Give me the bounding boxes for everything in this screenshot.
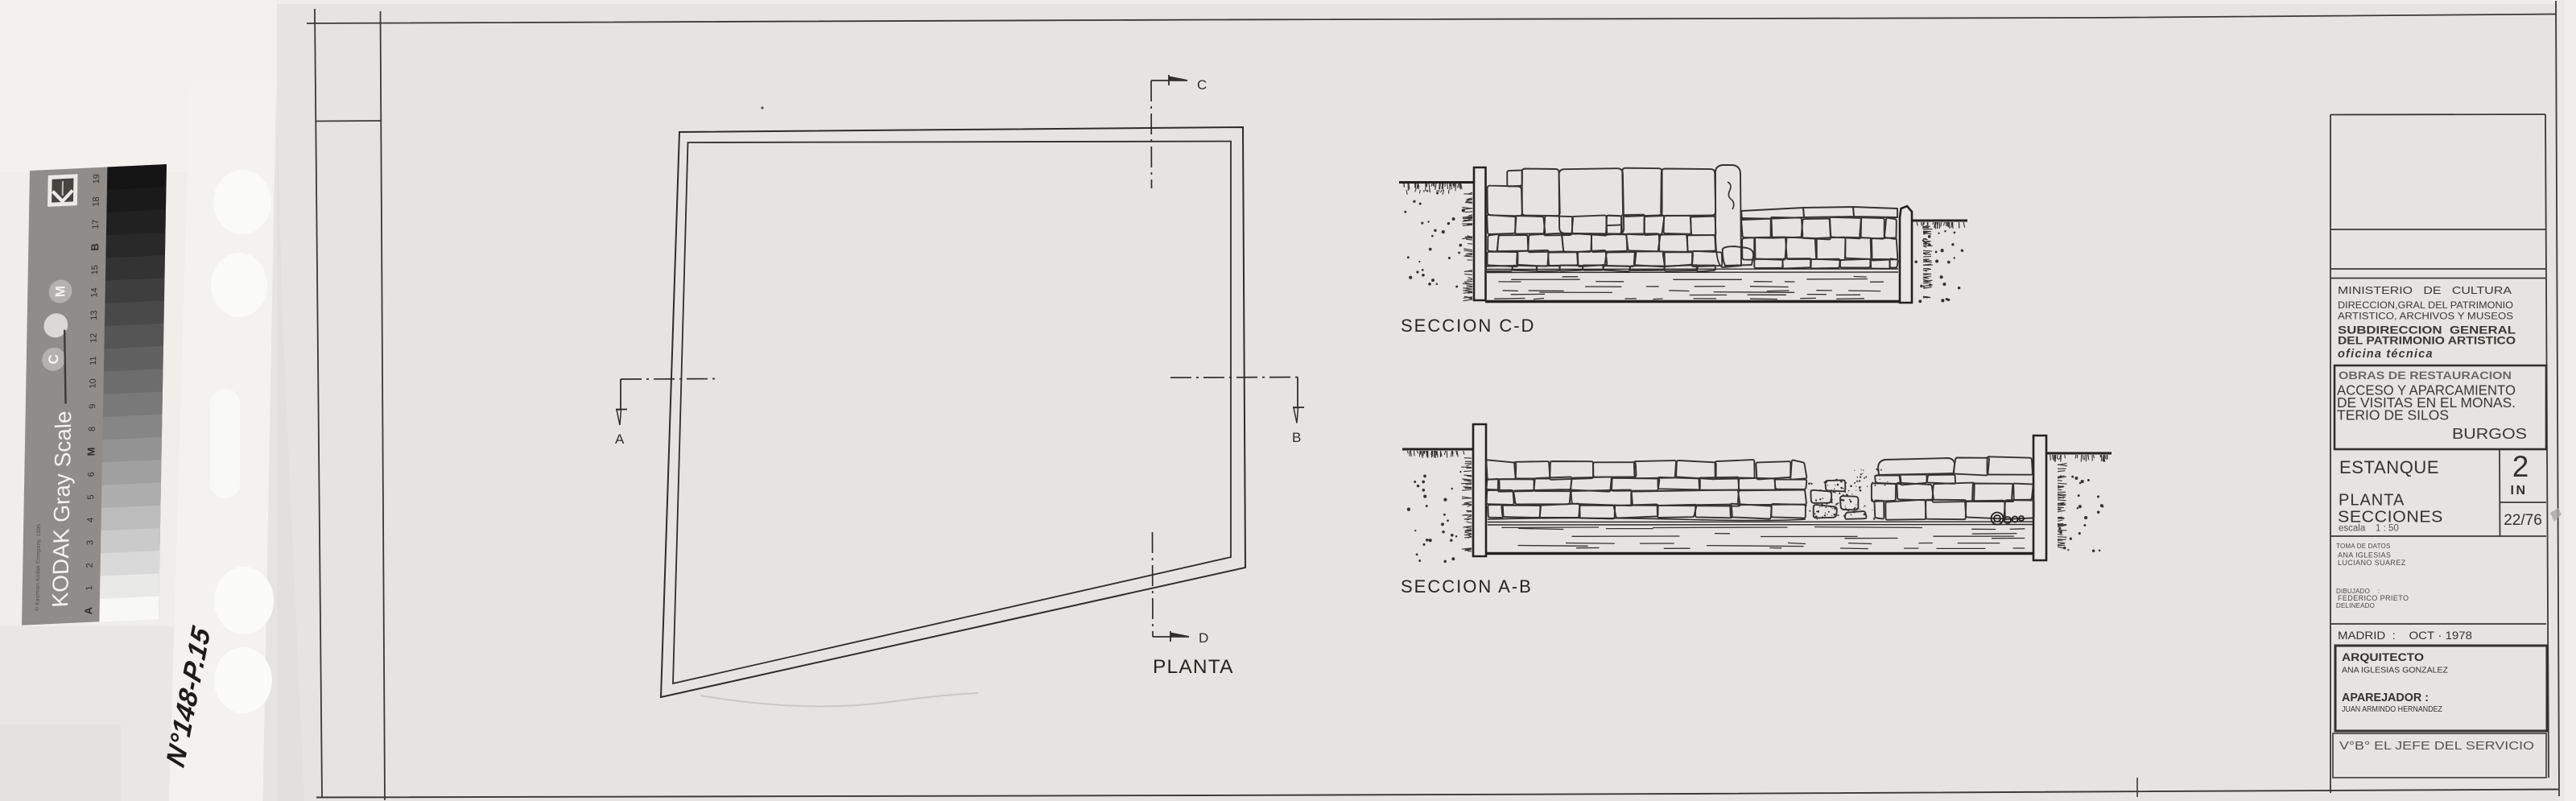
svg-text:ANA IGLESIAS: ANA IGLESIAS xyxy=(2338,551,2391,559)
svg-text:M: M xyxy=(52,286,68,298)
svg-text:PLANTA: PLANTA xyxy=(2339,492,2405,510)
svg-text:JUAN ARMINDO HERNANDEZ: JUAN ARMINDO HERNANDEZ xyxy=(2342,704,2442,714)
svg-text:SECCION C-D: SECCION C-D xyxy=(1401,316,1535,336)
svg-text:KODAK Gray Scale: KODAK Gray Scale xyxy=(47,411,76,608)
svg-text:FEDERICO PRIETO: FEDERICO PRIETO xyxy=(2338,594,2409,602)
svg-text:A: A xyxy=(615,431,625,447)
svg-text:MINISTERIO DE CULTURA: MINISTERIO DE CULTURA xyxy=(2338,285,2512,296)
svg-text:IN: IN xyxy=(2511,484,2528,498)
svg-text:OBRAS DE RESTAURACION: OBRAS DE RESTAURACION xyxy=(2339,370,2512,382)
svg-text:LUCIANO SUAREZ: LUCIANO SUAREZ xyxy=(2338,559,2406,567)
svg-text:17: 17 xyxy=(91,219,101,229)
svg-text:22/76: 22/76 xyxy=(2504,512,2542,529)
svg-text:A: A xyxy=(82,606,94,615)
svg-text:TERIO DE SILOS: TERIO DE SILOS xyxy=(2337,407,2449,423)
svg-text:12: 12 xyxy=(89,332,99,343)
svg-text:15: 15 xyxy=(90,265,100,275)
svg-text:B: B xyxy=(89,243,101,251)
svg-text:MADRID : OCT · 1978: MADRID : OCT · 1978 xyxy=(2338,629,2472,642)
svg-text:14: 14 xyxy=(90,287,100,298)
svg-text:DIRECCION,GRAL DEL PATRIMONIO: DIRECCION,GRAL DEL PATRIMONIO xyxy=(2338,299,2513,311)
svg-text:18: 18 xyxy=(92,196,101,207)
svg-text:C: C xyxy=(1197,77,1207,93)
svg-text:DEL PATRIMONIO ARTISTICO: DEL PATRIMONIO ARTISTICO xyxy=(2338,335,2516,347)
svg-text:PLANTA: PLANTA xyxy=(1153,656,1234,678)
svg-text:oficina técnica: oficina técnica xyxy=(2338,348,2434,361)
svg-text:3: 3 xyxy=(85,540,95,546)
svg-text:6: 6 xyxy=(87,472,97,477)
svg-text:5: 5 xyxy=(86,494,96,500)
svg-text:ESTANQUE: ESTANQUE xyxy=(2339,457,2439,477)
svg-text:19: 19 xyxy=(92,174,101,184)
svg-text:V°B° EL JEFE DEL SERVICIO: V°B° EL JEFE DEL SERVICIO xyxy=(2339,739,2534,753)
svg-text:9: 9 xyxy=(88,403,97,409)
svg-text:13: 13 xyxy=(89,310,99,320)
svg-text:B: B xyxy=(1292,430,1301,445)
svg-text:BURGOS: BURGOS xyxy=(2452,425,2527,442)
svg-text:SECCION A-B: SECCION A-B xyxy=(1401,576,1533,597)
svg-text:2: 2 xyxy=(85,563,95,568)
svg-text:APAREJADOR :: APAREJADOR : xyxy=(2342,691,2429,704)
svg-text:ANA IGLESIAS GONZALEZ: ANA IGLESIAS GONZALEZ xyxy=(2342,666,2449,675)
svg-text:2: 2 xyxy=(2512,450,2529,483)
svg-text:10: 10 xyxy=(89,378,98,389)
svg-text:1: 1 xyxy=(85,585,94,591)
svg-text:ARTISTICO, ARCHIVOS Y MUSEOS: ARTISTICO, ARCHIVOS Y MUSEOS xyxy=(2338,311,2513,322)
svg-text:C: C xyxy=(46,354,61,365)
svg-text:M: M xyxy=(85,447,97,456)
svg-text:escala 1 : 50: escala 1 : 50 xyxy=(2339,524,2399,534)
svg-text:4: 4 xyxy=(86,517,96,522)
svg-text:8: 8 xyxy=(88,426,97,431)
svg-text:ARQUITECTO: ARQUITECTO xyxy=(2342,651,2424,663)
svg-text:11: 11 xyxy=(89,356,98,365)
svg-text:DELINEADO: DELINEADO xyxy=(2336,602,2375,609)
svg-text:D: D xyxy=(1199,630,1208,646)
svg-text:TOMA DE DATOS: TOMA DE DATOS xyxy=(2336,543,2391,550)
